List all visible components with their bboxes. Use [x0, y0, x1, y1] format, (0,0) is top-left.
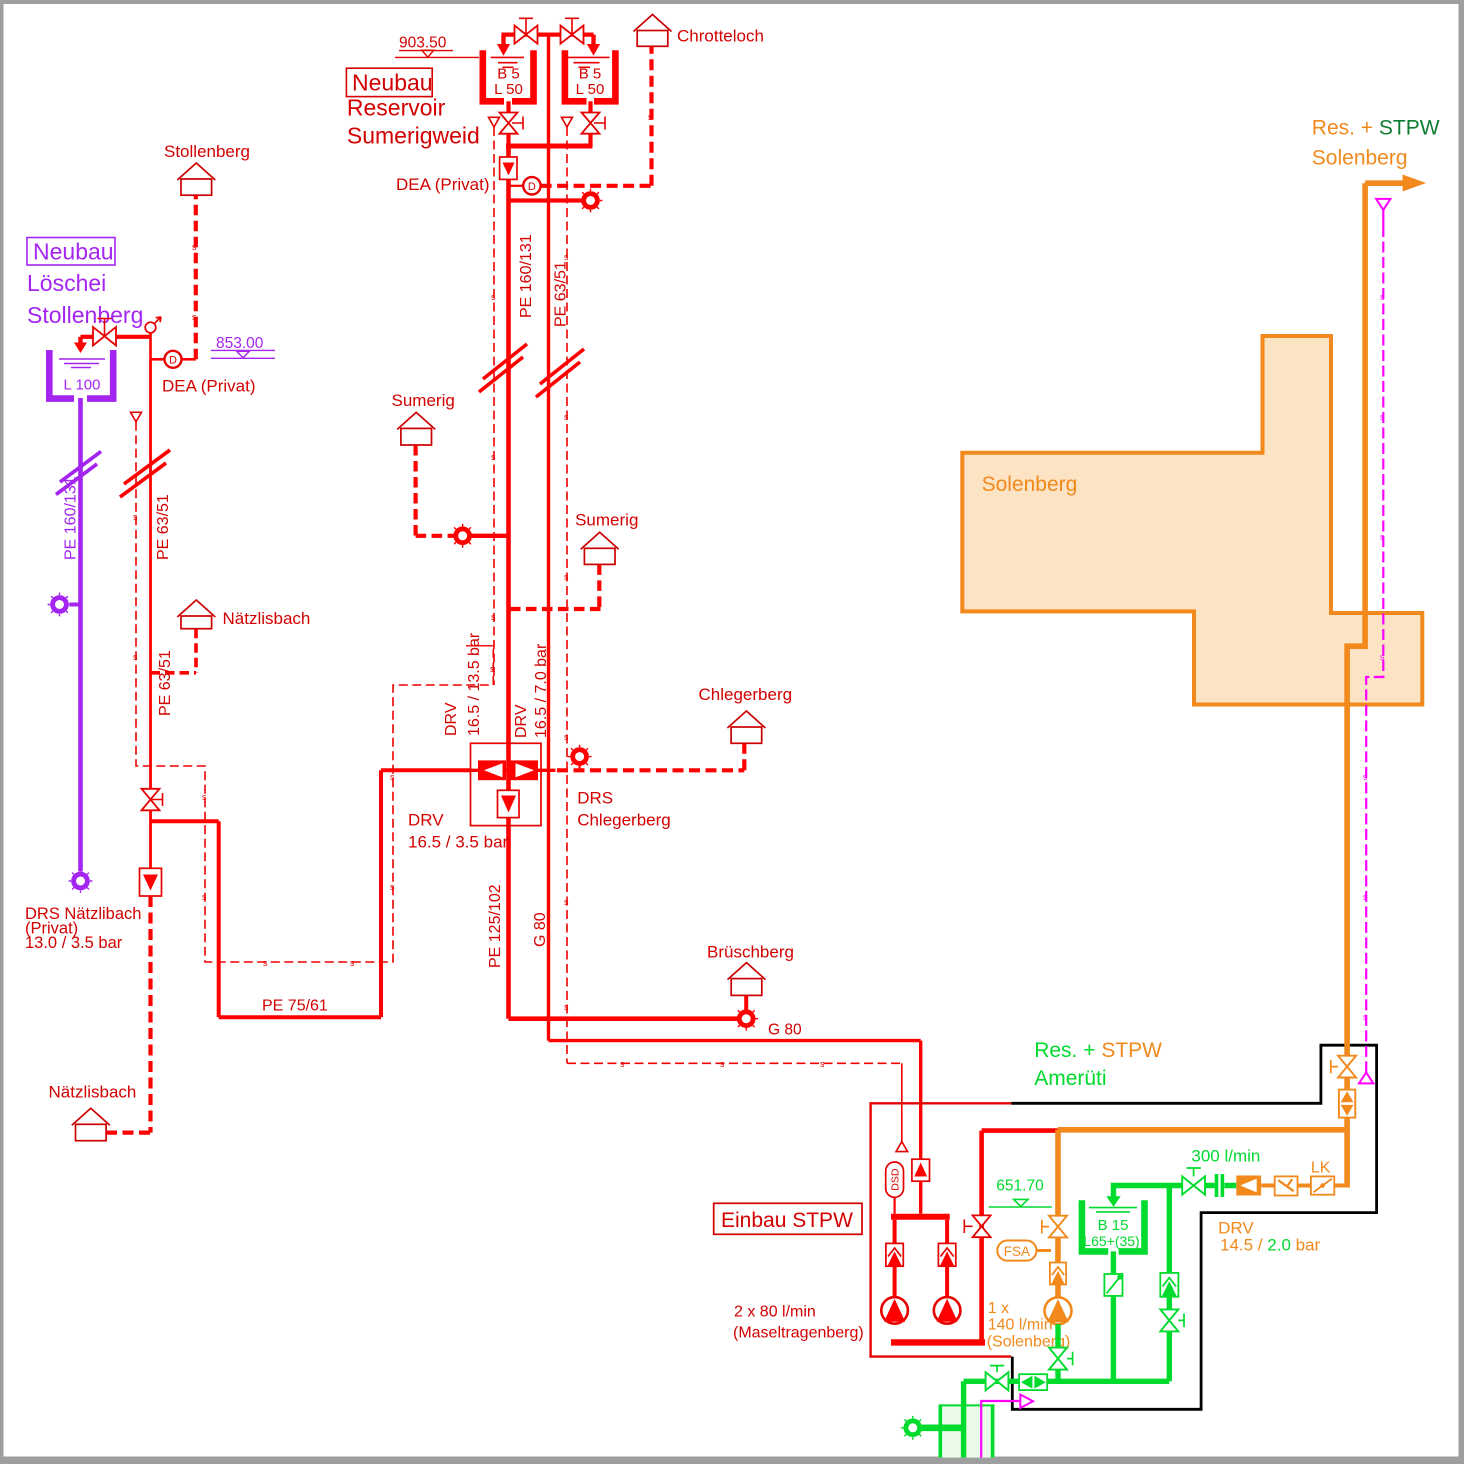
svg-text:1 x: 1 x: [988, 1300, 1009, 1317]
svg-text:DSD: DSD: [889, 1168, 901, 1191]
svg-text:16.5 / 13.5 bar: 16.5 / 13.5 bar: [466, 632, 483, 736]
svg-text:s: s: [390, 772, 395, 782]
svg-text:G 80: G 80: [532, 912, 549, 947]
svg-text:s: s: [1363, 1012, 1368, 1022]
svg-text:Res. + STPW: Res. + STPW: [1034, 1039, 1162, 1062]
svg-text:PE 63/51: PE 63/51: [553, 261, 570, 327]
svg-text:PE 160/131: PE 160/131: [63, 476, 80, 560]
svg-text:DRV: DRV: [408, 811, 444, 830]
svg-text:Brüschberg: Brüschberg: [707, 943, 794, 962]
svg-text:s: s: [202, 892, 207, 902]
svg-text:s: s: [564, 412, 569, 422]
svg-text:DRV: DRV: [443, 702, 460, 736]
svg-text:651.70: 651.70: [996, 1178, 1044, 1195]
svg-text:s: s: [1380, 652, 1385, 662]
svg-text:PE 125/102: PE 125/102: [487, 884, 504, 968]
svg-text:PE 63/51: PE 63/51: [155, 494, 172, 560]
svg-text:FSA: FSA: [1004, 1244, 1030, 1259]
svg-text:Einbau STPW: Einbau STPW: [721, 1209, 853, 1232]
svg-text:2 x 80 l/min: 2 x 80 l/min: [734, 1304, 816, 1321]
svg-text:s: s: [491, 292, 496, 302]
svg-text:DEA (Privat): DEA (Privat): [396, 175, 490, 194]
svg-text:s: s: [192, 242, 197, 252]
svg-text:s: s: [1363, 772, 1368, 782]
svg-text:B 5: B 5: [579, 65, 602, 82]
svg-text:Sumerig: Sumerig: [575, 511, 638, 530]
svg-text:13.0 / 3.5 bar: 13.0 / 3.5 bar: [25, 934, 123, 952]
svg-text:s: s: [648, 112, 653, 122]
svg-text:Chrotteloch: Chrotteloch: [677, 27, 764, 46]
svg-text:Neubau: Neubau: [352, 70, 433, 96]
svg-text:PE 160/131: PE 160/131: [518, 234, 535, 318]
svg-text:s: s: [564, 1002, 569, 1012]
svg-text:Sumerigweid: Sumerigweid: [347, 123, 480, 149]
svg-text:Stollenberg: Stollenberg: [27, 302, 143, 328]
svg-text:Nätzlisbach: Nätzlisbach: [49, 1083, 137, 1102]
svg-text:s: s: [133, 652, 138, 662]
svg-text:B 5: B 5: [497, 65, 520, 82]
svg-text:PE 63/51: PE 63/51: [157, 650, 174, 716]
svg-text:s: s: [350, 958, 355, 968]
svg-text:16.5 / 3.5 bar: 16.5 / 3.5 bar: [408, 833, 509, 852]
svg-text:L 50: L 50: [494, 81, 523, 98]
svg-text:s: s: [263, 958, 268, 968]
svg-text:s: s: [564, 732, 569, 742]
svg-text:s: s: [491, 452, 496, 462]
svg-text:PE 75/61: PE 75/61: [262, 998, 328, 1015]
svg-text:s: s: [491, 612, 496, 622]
svg-text:Stollenberg: Stollenberg: [164, 142, 250, 161]
svg-text:L65+(35): L65+(35): [1083, 1233, 1139, 1249]
svg-text:Nätzlisbach: Nätzlisbach: [223, 609, 311, 628]
svg-text:L 50: L 50: [576, 81, 605, 98]
svg-text:D: D: [169, 354, 177, 366]
svg-text:Chlegerberg: Chlegerberg: [699, 685, 793, 704]
svg-text:DRS: DRS: [577, 789, 613, 808]
svg-text:140 l/min: 140 l/min: [988, 1316, 1053, 1333]
svg-text:s: s: [620, 1059, 625, 1069]
svg-text:Amerüti: Amerüti: [1034, 1067, 1106, 1090]
svg-text:s: s: [490, 664, 495, 674]
svg-text:s: s: [133, 512, 138, 522]
svg-text:Neubau: Neubau: [33, 239, 114, 265]
svg-text:s: s: [720, 1059, 725, 1069]
svg-text:s: s: [1380, 412, 1385, 422]
svg-text:Res. + STPW: Res. + STPW: [1312, 117, 1440, 140]
svg-text:s: s: [1363, 892, 1368, 902]
svg-text:s: s: [1380, 532, 1385, 542]
svg-text:Chlegerberg: Chlegerberg: [577, 811, 671, 830]
svg-text:Sumerig: Sumerig: [392, 391, 455, 410]
svg-text:14.5 / 2.0 bar: 14.5 / 2.0 bar: [1220, 1236, 1321, 1255]
svg-text:s: s: [390, 882, 395, 892]
svg-text:Reservoir: Reservoir: [347, 95, 446, 121]
svg-text:LK: LK: [1311, 1160, 1331, 1177]
svg-text:s: s: [820, 1059, 825, 1069]
svg-text:s: s: [564, 572, 569, 582]
svg-text:DEA (Privat): DEA (Privat): [162, 377, 256, 396]
svg-text:853.00: 853.00: [216, 335, 264, 352]
svg-text:Solenberg: Solenberg: [982, 473, 1078, 496]
svg-text:G 80: G 80: [768, 1022, 802, 1039]
svg-text:s: s: [202, 792, 207, 802]
svg-text:s: s: [1380, 292, 1385, 302]
svg-text:B 15: B 15: [1098, 1217, 1129, 1234]
svg-text:300 l/min: 300 l/min: [1191, 1147, 1260, 1166]
svg-text:Löschei: Löschei: [27, 270, 106, 296]
svg-text:16.5 / 7.0 bar: 16.5 / 7.0 bar: [533, 643, 550, 738]
svg-text:(Maseltragenberg): (Maseltragenberg): [733, 1325, 864, 1342]
svg-text:903.50: 903.50: [399, 35, 447, 52]
svg-text:s: s: [564, 252, 569, 262]
svg-text:s: s: [564, 897, 569, 907]
svg-text:DRV: DRV: [513, 704, 530, 738]
svg-text:Solenberg: Solenberg: [1312, 147, 1408, 170]
svg-text:L 100: L 100: [64, 377, 101, 394]
svg-text:D: D: [528, 181, 536, 193]
svg-text:s: s: [192, 312, 197, 322]
